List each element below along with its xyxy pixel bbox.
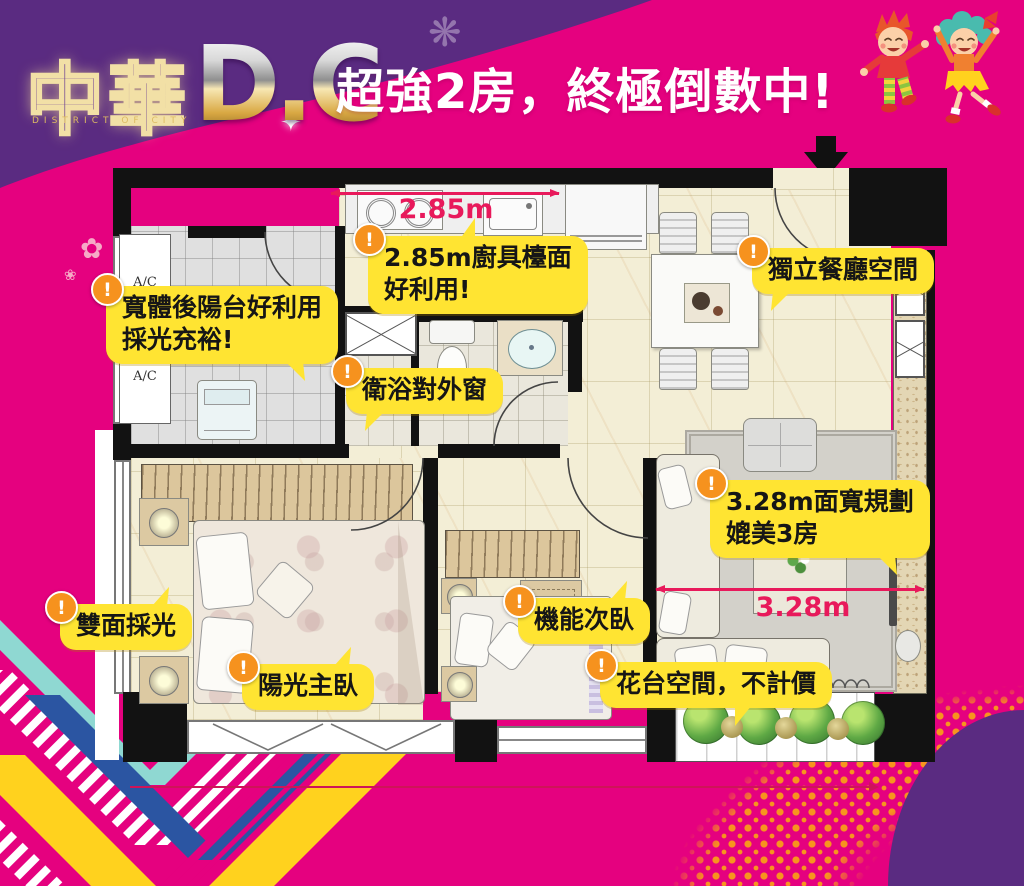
wall-second-bedroom-top xyxy=(438,444,560,458)
bed-pillow xyxy=(195,531,254,610)
callout-text: 衛浴對外窗 xyxy=(346,368,503,414)
callout-planter: ! 花台空間，不計價 xyxy=(600,662,832,708)
window-master-left xyxy=(114,460,131,694)
planter-tuft xyxy=(827,718,849,740)
bubble-tail xyxy=(365,410,384,433)
decor-object xyxy=(895,630,921,662)
ac-label: A/C xyxy=(133,369,157,384)
bubble-tail xyxy=(334,645,351,667)
exclamation-icon: ! xyxy=(45,591,78,624)
wall-right-outer xyxy=(927,250,935,694)
callout-text: 好利用! xyxy=(384,274,572,306)
toilet-tank xyxy=(429,320,475,344)
wall-master-top xyxy=(131,444,349,458)
shower-tray xyxy=(345,312,417,356)
bubble-tail xyxy=(152,585,169,607)
bubble-tail xyxy=(878,554,897,577)
exclamation-icon: ! xyxy=(91,273,124,306)
dimension-label-living: 3.28m xyxy=(743,592,863,623)
callout-master-bedroom: ! 陽光主臥 xyxy=(242,664,374,710)
blossom-small-icon: ❀ xyxy=(64,266,77,284)
dining-chair xyxy=(711,348,749,390)
callout-text: 寬體後陽台好利用 xyxy=(122,292,322,324)
ottoman xyxy=(743,418,817,472)
lamp-icon xyxy=(447,672,473,698)
callout-bath: ! 衛浴對外窗 xyxy=(346,368,503,414)
callout-living: ! 3.28m面寬規劃 媲美3房 xyxy=(710,480,930,558)
lamp-icon xyxy=(149,666,179,696)
callout-text: 機能次臥 xyxy=(518,598,650,644)
exclamation-icon: ! xyxy=(695,467,728,500)
callout-text: 媲美3房 xyxy=(726,518,914,550)
wall-left-upper xyxy=(113,168,131,236)
brand-tagline: DISTRICT OF CITY xyxy=(32,116,191,126)
callout-dual-light: ! 雙面採光 xyxy=(60,604,192,650)
exclamation-icon: ! xyxy=(353,223,386,256)
bubble-tail xyxy=(610,579,627,601)
bubble-tail xyxy=(771,290,790,313)
cartoon-kids-illustration xyxy=(846,4,1018,168)
ledge-lattice-2 xyxy=(895,320,925,378)
brand-logo: 中華D.C xyxy=(26,30,378,150)
wall-bedroom-divider xyxy=(423,458,438,694)
window-master-bottom xyxy=(187,720,455,754)
dimension-line-living xyxy=(656,588,924,591)
wall-top-right-block xyxy=(849,168,947,246)
callout-text: 3.28m面寬規劃 xyxy=(726,486,914,518)
flower-ledge xyxy=(893,250,927,694)
exclamation-icon: ! xyxy=(331,355,364,388)
bubble-tail xyxy=(286,360,305,383)
exclamation-icon: ! xyxy=(737,235,770,268)
wall-balcony-top xyxy=(188,226,266,238)
callout-text: 採光充裕! xyxy=(122,324,322,356)
callout-second-bedroom: ! 機能次臥 xyxy=(518,598,650,644)
callout-text: 雙面採光 xyxy=(60,604,192,650)
kid-boy xyxy=(860,10,929,113)
exclamation-icon: ! xyxy=(227,651,260,684)
headline-slogan: 超強2房，終極倒數中! xyxy=(336,52,834,122)
kid-girl xyxy=(933,11,1002,124)
callout-kitchen: ! 2.85m廚具檯面 好利用! xyxy=(368,236,588,314)
callout-dining: ! 獨立餐廳空間 xyxy=(752,248,934,294)
callout-text: 獨立餐廳空間 xyxy=(752,248,934,294)
red-arrow-line xyxy=(130,786,870,788)
dining-chair xyxy=(659,212,697,254)
bubble-tail xyxy=(460,218,475,239)
callout-text: 花台空間，不計價 xyxy=(600,662,832,708)
callout-balcony: ! 寬體後陽台好利用 採光充裕! xyxy=(106,286,338,364)
wall-living-left xyxy=(643,458,657,694)
dimension-label-kitchen: 2.85m xyxy=(381,194,511,225)
second-wardrobe xyxy=(445,530,580,578)
callout-text: 陽光主臥 xyxy=(242,664,374,710)
wall-bathroom-right xyxy=(568,306,582,392)
window-second-bedroom-bottom xyxy=(497,726,647,754)
callout-text: 2.85m廚具檯面 xyxy=(384,242,572,274)
wall-left-mid xyxy=(113,424,131,460)
snowflake-sparkle-icon: ❋ xyxy=(428,10,462,56)
exclamation-icon: ! xyxy=(585,649,618,682)
entry-floor xyxy=(771,168,849,190)
exclamation-icon: ! xyxy=(503,585,536,618)
dining-table xyxy=(651,254,759,348)
lamp-icon xyxy=(149,508,179,538)
bubble-tail xyxy=(735,705,752,726)
washing-machine xyxy=(197,380,257,440)
dining-chair xyxy=(659,348,697,390)
planter-tuft xyxy=(775,717,797,739)
bed-pillow xyxy=(454,612,495,668)
brand-name-chinese: 中華 xyxy=(26,38,190,150)
blossom-icon: ✿ xyxy=(80,232,103,265)
poster: ❋ ✦ 中華D.C DISTRICT OF CITY 超強2房，終極倒數中! xyxy=(0,0,1024,886)
vanity-counter xyxy=(497,320,563,376)
